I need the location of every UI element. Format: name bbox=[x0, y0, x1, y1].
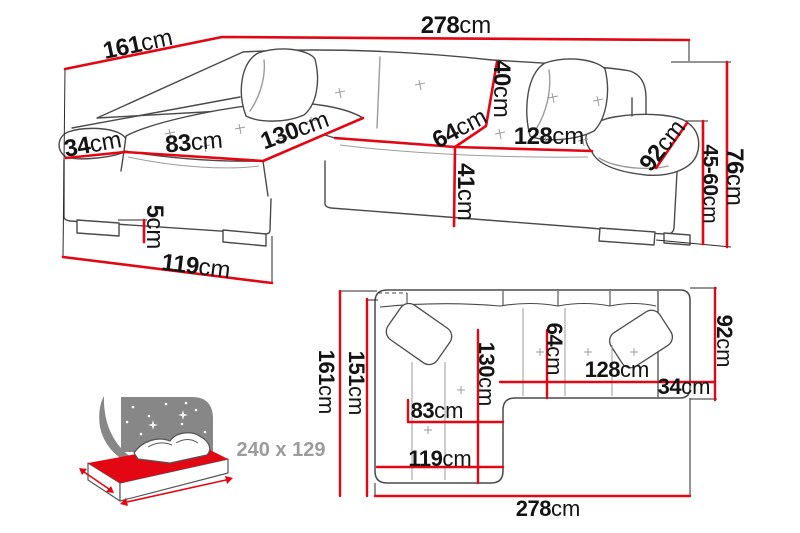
dim-label-chaise-seat-width-83: 83cm bbox=[164, 129, 224, 158]
dim-label-overall-width-278: 278cm bbox=[421, 14, 492, 38]
dim-label-plan-128: 128cm bbox=[585, 359, 650, 381]
dimension-diagram: 161cm 278cm 34cm 83cm 130cm 40cm 64cm 12… bbox=[0, 0, 800, 533]
diagram-line-art bbox=[0, 0, 800, 533]
dim-label-plan-119: 119cm bbox=[408, 448, 471, 470]
dim-label-plan-92: 92cm bbox=[713, 315, 735, 368]
sleeping-area-size-label: 240 x 129 bbox=[237, 440, 326, 460]
dim-label-backrest-height-40: 40cm bbox=[489, 60, 513, 118]
dim-label-plan-278: 278cm bbox=[516, 498, 581, 520]
dim-label-plan-151: 151cm bbox=[345, 351, 367, 416]
dim-label-seat-width-128: 128cm bbox=[514, 125, 585, 149]
left-pillow bbox=[241, 49, 317, 121]
dim-label-leg-height-5: 5cm bbox=[142, 205, 166, 250]
dim-label-plan-130: 130cm bbox=[475, 342, 497, 407]
dim-label-plan-64: 64cm bbox=[543, 323, 565, 376]
sleeping-function-icon bbox=[79, 396, 233, 506]
dim-label-plan-83: 83cm bbox=[411, 400, 464, 422]
dim-label-armrest-height-45-60: 45-60cm bbox=[700, 144, 721, 223]
dim-label-plan-161: 161cm bbox=[315, 350, 337, 415]
dim-label-total-height-76: 76cm bbox=[722, 148, 746, 206]
dim-label-seat-height-41: 41cm bbox=[453, 163, 477, 221]
dim-label-plan-34: 34cm bbox=[658, 376, 711, 398]
